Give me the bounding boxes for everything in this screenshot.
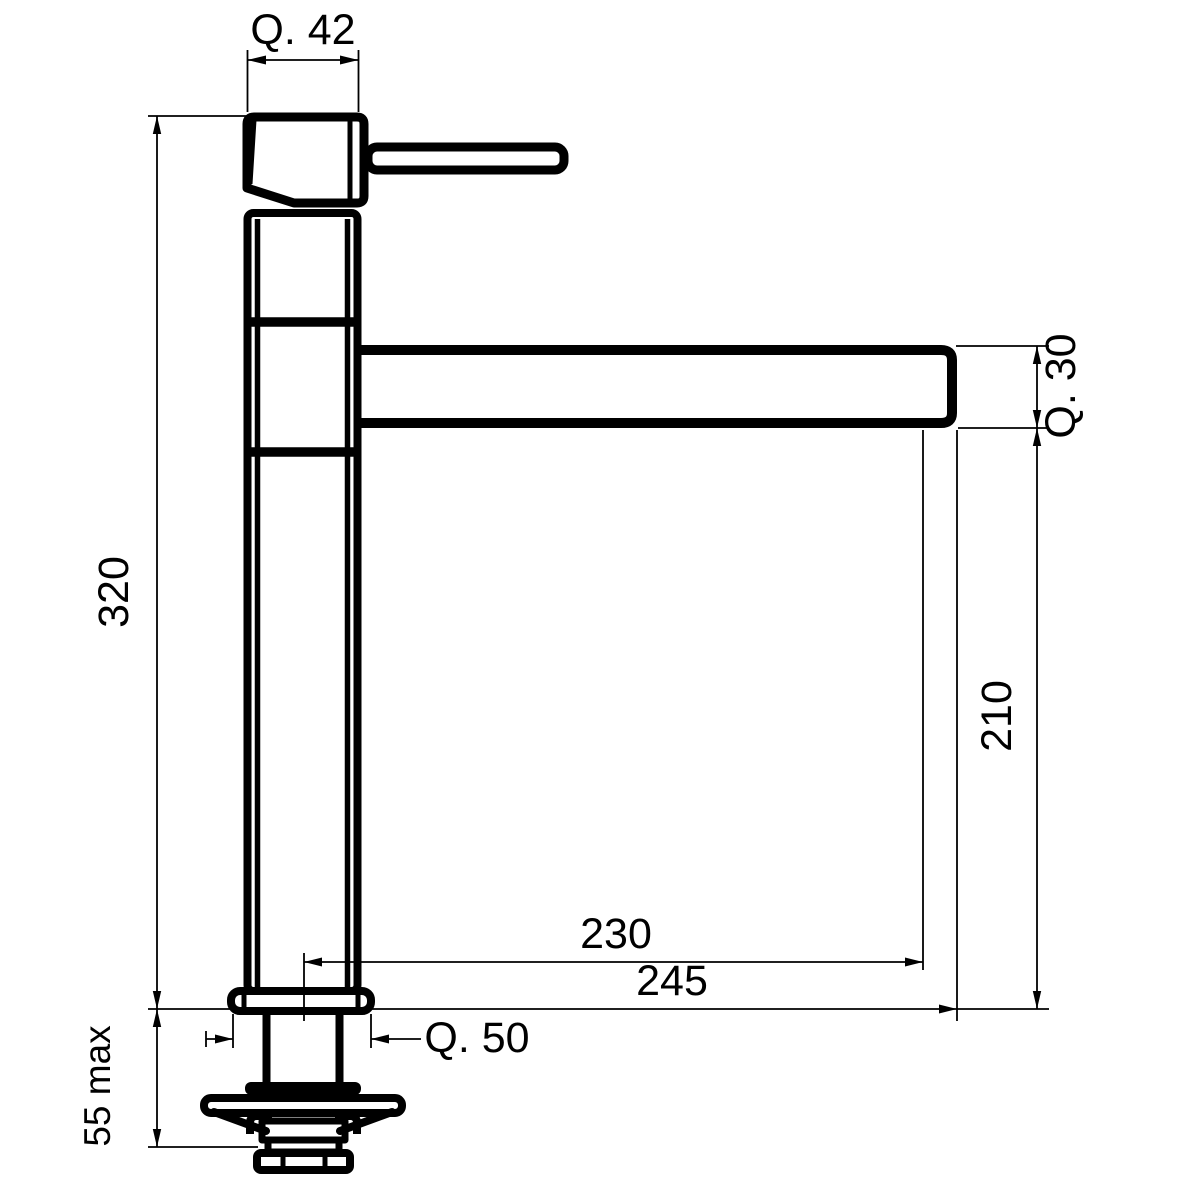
base-plate bbox=[231, 991, 371, 1011]
dimension-label-reach-outlet: 230 bbox=[580, 910, 652, 958]
spout-outline bbox=[361, 350, 952, 423]
dimension-base-width: Q. 50 bbox=[206, 1014, 530, 1062]
dimension-overall-height: 320 bbox=[90, 116, 250, 1009]
lever-handle bbox=[368, 147, 564, 170]
tap-technical-drawing: Q. 42 320 55 max Q. 30 210 bbox=[0, 0, 1200, 1200]
dimension-spout-section: Q. 30 bbox=[956, 333, 1085, 438]
body-column-outline bbox=[248, 213, 358, 991]
dimension-label-reach-overall: 245 bbox=[636, 957, 708, 1005]
clamp-flange bbox=[204, 1098, 402, 1113]
arrowhead bbox=[153, 1129, 161, 1147]
mounting-lock-nut bbox=[257, 1153, 350, 1170]
dimension-label-spout-underside: 210 bbox=[973, 680, 1021, 752]
arrowhead bbox=[939, 1005, 957, 1014]
arrowhead bbox=[153, 1009, 161, 1027]
dimension-label-head-width: Q. 42 bbox=[250, 6, 355, 54]
dimension-deck-thickness: 55 max bbox=[77, 1009, 258, 1147]
dimension-label-base-width: Q. 50 bbox=[424, 1014, 529, 1062]
arrowhead bbox=[371, 1035, 389, 1044]
dimension-label-overall-height: 320 bbox=[90, 556, 138, 628]
dimension-label-spout-section: Q. 30 bbox=[1037, 333, 1085, 438]
arrowhead bbox=[304, 958, 322, 967]
arrowhead bbox=[340, 56, 359, 65]
mixer-head-outline bbox=[247, 117, 364, 203]
dimension-spout-underside: 210 bbox=[973, 428, 1041, 1009]
dimension-label-deck-thickness: 55 max bbox=[77, 1025, 118, 1147]
shank-washer bbox=[245, 1082, 361, 1095]
arrowhead bbox=[248, 56, 267, 65]
dimension-reach-outlet: 230 bbox=[304, 430, 923, 970]
arrowhead bbox=[1033, 991, 1041, 1009]
arrowhead bbox=[153, 116, 161, 134]
faucet-figure bbox=[204, 117, 952, 1170]
arrowhead bbox=[215, 1035, 233, 1044]
arrowhead bbox=[153, 991, 161, 1009]
arrowhead bbox=[905, 958, 923, 967]
drawing-canvas: Q. 42 320 55 max Q. 30 210 bbox=[0, 0, 1200, 1200]
dimension-head-width: Q. 42 bbox=[248, 6, 359, 112]
